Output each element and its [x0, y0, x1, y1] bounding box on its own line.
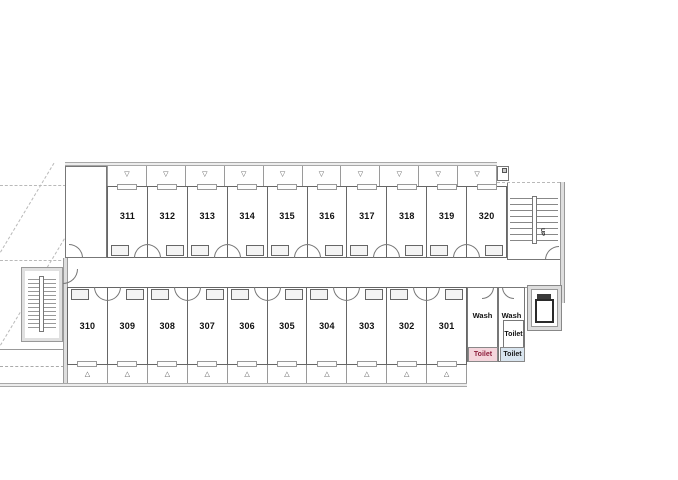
toilet-label: Toilet [501, 351, 524, 358]
balcony-bay: ▽ [107, 166, 147, 186]
door-arc [254, 287, 268, 301]
balcony-bay: △ [228, 365, 268, 383]
balcony-door-symbol: △ [148, 371, 187, 378]
room-number: 315 [268, 211, 307, 221]
balcony-edge-bottom [0, 383, 467, 387]
closet-fixture [502, 168, 507, 173]
door-arc [426, 287, 440, 301]
room-316: 316 [307, 187, 347, 257]
door-arc [227, 244, 241, 258]
balcony-bay: ▽ [380, 166, 419, 186]
door-arc [187, 287, 201, 301]
door-arc [346, 287, 360, 301]
balcony-bay: △ [387, 365, 427, 383]
door-arc [174, 287, 188, 301]
balcony-door-symbol: △ [347, 371, 386, 378]
room-number: 318 [387, 211, 426, 221]
balcony-door-symbol: ▽ [186, 171, 224, 178]
room-320: 320 [466, 187, 507, 257]
balcony-door-symbol: ▽ [303, 171, 341, 178]
balcony-door-symbol: △ [108, 371, 147, 378]
stair-newel [532, 196, 537, 244]
balcony-door-symbol: ▽ [419, 171, 457, 178]
room-number: 303 [347, 321, 386, 331]
balcony-bay: △ [108, 365, 148, 383]
wash-label: Wash [468, 311, 497, 320]
room-318: 318 [386, 187, 426, 257]
door-arc [147, 244, 161, 258]
room-number: 302 [387, 321, 426, 331]
toilet-room-blue: Toilet [500, 347, 525, 362]
door-arc [373, 244, 387, 258]
elevator-shaft [527, 285, 562, 331]
room-number: 314 [228, 211, 267, 221]
room-302: 302 [386, 288, 426, 364]
toilet-room-pink: Toilet [468, 347, 498, 362]
balcony-door-symbol: △ [387, 371, 426, 378]
floor-plan: ▽ ▽ ▽ ▽ ▽ ▽ ▽ ▽ ▽ ▽ 311 312 313 314 315 … [0, 0, 678, 480]
room-number: 311 [108, 211, 147, 221]
door-arc [307, 244, 321, 258]
room-number: 306 [228, 321, 267, 331]
balcony-bay: ▽ [147, 166, 186, 186]
room-301: 301 [426, 288, 467, 364]
balcony-bay: ▽ [341, 166, 380, 186]
door-arc [333, 287, 347, 301]
balcony-bay: ▽ [225, 166, 264, 186]
exterior-walkway [0, 349, 64, 383]
room-number: 304 [307, 321, 346, 331]
toilet-room-small: Toilet [503, 320, 524, 347]
door-arc [134, 244, 148, 258]
room-number: 310 [68, 321, 107, 331]
room-number: 307 [188, 321, 227, 331]
diagonal-site-line [0, 163, 54, 253]
balcony-bay: △ [188, 365, 228, 383]
room-317: 317 [346, 187, 386, 257]
balcony-door-symbol: ▽ [147, 171, 185, 178]
room-number: 308 [148, 321, 187, 331]
room-308: 308 [147, 288, 187, 364]
door-arc [413, 287, 427, 301]
door-arc [466, 244, 480, 258]
room-306: 306 [227, 288, 267, 364]
room-313: 313 [187, 187, 227, 257]
stair-flight [510, 198, 534, 242]
room-315: 315 [267, 187, 307, 257]
balcony-door-symbol: ▽ [108, 171, 146, 178]
balcony-bay: ▽ [186, 166, 225, 186]
door-arc [482, 287, 494, 299]
room-314: 314 [227, 187, 267, 257]
room-number: 309 [108, 321, 147, 331]
room-number: 305 [268, 321, 307, 331]
balcony-door-symbol: ▽ [380, 171, 418, 178]
elevator-car [535, 299, 554, 323]
section-line-lower [0, 260, 66, 261]
balcony-door-symbol: △ [307, 371, 346, 378]
room-number: 319 [427, 211, 466, 221]
wash-label: Wash [499, 311, 524, 320]
balcony-door-symbol: △ [268, 371, 307, 378]
room-311: 311 [107, 187, 147, 257]
balcony-strip-bottom: △ △ △ △ △ △ △ △ △ △ [67, 365, 467, 383]
room-number: 320 [467, 211, 506, 221]
balcony-door-symbol: ▽ [341, 171, 379, 178]
door-arc [502, 287, 514, 299]
balcony-door-symbol: △ [228, 371, 267, 378]
door-arc [107, 287, 121, 301]
room-305: 305 [267, 288, 307, 364]
room-number: 316 [308, 211, 347, 221]
toilet-label: Toilet [469, 351, 497, 358]
stairwell-right: UP [507, 183, 560, 260]
room-row-bottom: 310 309 308 307 306 305 304 303 302 301 [67, 287, 467, 365]
balcony-door-symbol: △ [188, 371, 227, 378]
room-number: 317 [347, 211, 386, 221]
room-row-top: 311 312 313 314 315 316 317 318 319 320 [107, 186, 507, 258]
balcony-bay: △ [307, 365, 347, 383]
room-307: 307 [187, 288, 227, 364]
balcony-door-symbol: ▽ [264, 171, 302, 178]
door-arc [294, 244, 308, 258]
balcony-bay: ▽ [419, 166, 458, 186]
balcony-bay: △ [427, 365, 467, 383]
balcony-door-symbol: △ [68, 371, 107, 378]
section-line-upper [0, 185, 66, 186]
door-arc [63, 269, 78, 284]
room-304: 304 [306, 288, 346, 364]
balcony-bay: ▽ [264, 166, 303, 186]
room-number: 301 [427, 321, 466, 331]
door-arc [545, 246, 559, 260]
room-312: 312 [147, 187, 187, 257]
balcony-strip-top: ▽ ▽ ▽ ▽ ▽ ▽ ▽ ▽ ▽ ▽ [107, 166, 497, 186]
door-arc [214, 244, 228, 258]
stair-up-label: UP [539, 228, 545, 236]
door-arc [267, 287, 281, 301]
balcony-bay: △ [268, 365, 308, 383]
small-closet [497, 166, 509, 181]
door-arc [69, 244, 83, 258]
balcony-door-symbol: ▽ [458, 171, 496, 178]
balcony-bay: △ [67, 365, 108, 383]
utility-room [65, 166, 107, 258]
toilet-label: Toilet [504, 331, 523, 338]
door-arc [94, 287, 108, 301]
room-309: 309 [107, 288, 147, 364]
balcony-door-symbol: △ [427, 371, 466, 378]
room-number: 313 [188, 211, 227, 221]
door-arc [453, 244, 467, 258]
balcony-bay: ▽ [458, 166, 497, 186]
room-303: 303 [346, 288, 386, 364]
door-arc [386, 244, 400, 258]
room-319: 319 [426, 187, 466, 257]
room-number: 312 [148, 211, 187, 221]
balcony-bay: △ [347, 365, 387, 383]
stair-newel [39, 276, 44, 332]
balcony-bay: △ [148, 365, 188, 383]
room-310: 310 [67, 288, 107, 364]
balcony-door-symbol: ▽ [225, 171, 263, 178]
balcony-bay: ▽ [303, 166, 342, 186]
stairwell-left [25, 271, 59, 338]
